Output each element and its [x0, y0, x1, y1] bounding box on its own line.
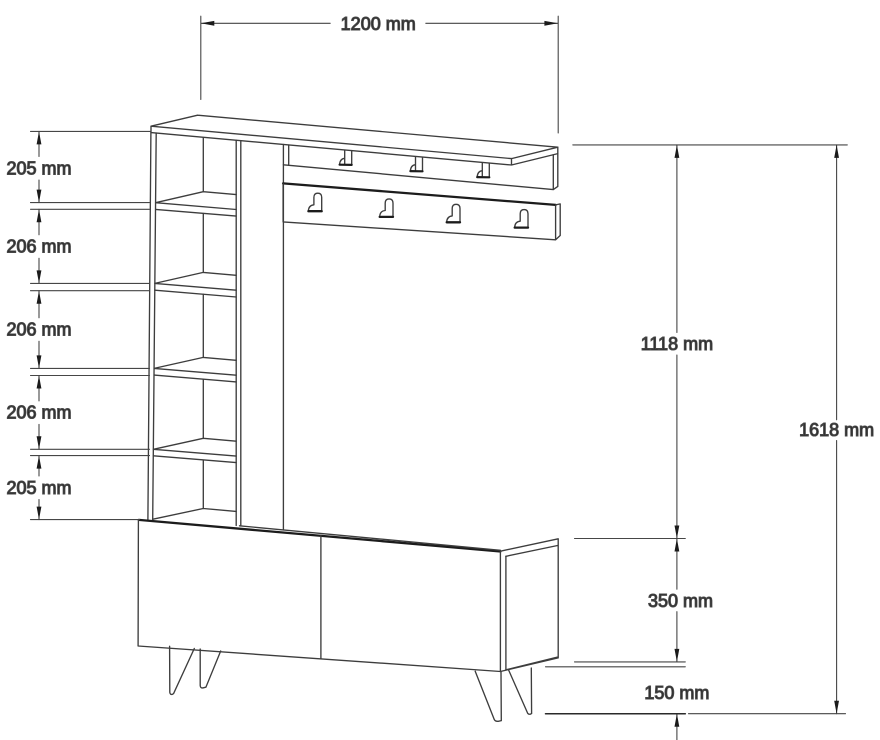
svg-text:206 mm: 206 mm: [6, 320, 71, 340]
svg-text:1618 mm: 1618 mm: [799, 420, 874, 440]
svg-text:206 mm: 206 mm: [6, 237, 71, 257]
svg-text:206 mm: 206 mm: [6, 403, 71, 423]
svg-text:205 mm: 205 mm: [6, 158, 71, 178]
svg-text:350 mm: 350 mm: [648, 591, 713, 611]
svg-text:1118 mm: 1118 mm: [641, 334, 713, 354]
svg-text:150 mm: 150 mm: [644, 683, 709, 703]
svg-text:1200 mm: 1200 mm: [341, 14, 416, 34]
svg-text:205 mm: 205 mm: [6, 478, 71, 498]
